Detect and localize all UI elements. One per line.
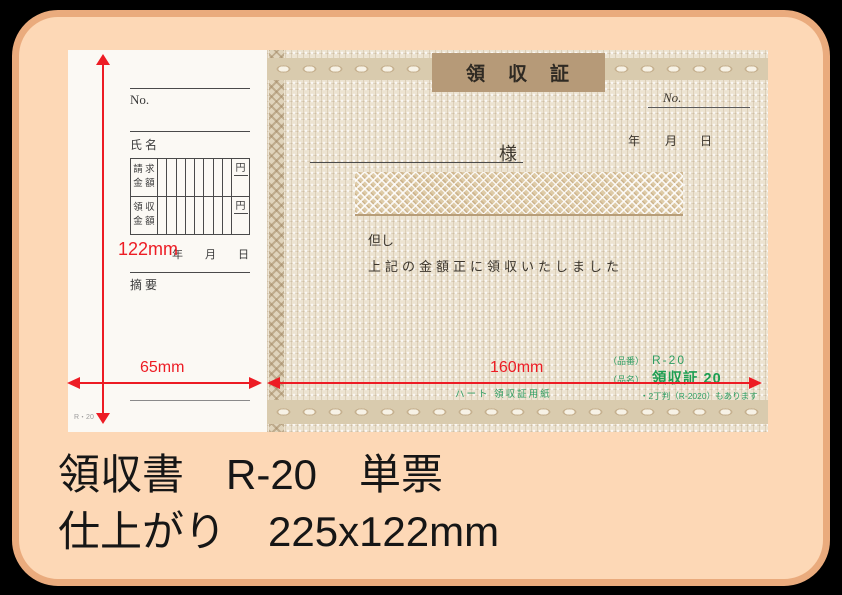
product-name-value: 領収証 20 — [652, 367, 722, 388]
receipt-product-image: No. 氏 名 請 求 金 額 円 領 収 — [68, 50, 768, 432]
stub-year-label: 年 — [172, 246, 183, 262]
received-amount-row: 領 収 金 額 円 — [131, 197, 249, 235]
caption-line-2: 仕上がり 225x122mm — [58, 503, 499, 560]
product-number-label: （品番） — [608, 354, 644, 367]
stub-no-underline — [130, 131, 250, 132]
guilloche-bottom-band — [267, 400, 768, 424]
product-name-row: （品名） 領収証 20 — [608, 367, 722, 388]
stub-date-rule — [130, 272, 250, 273]
caption-line-1: 領収書 R-20 単票 — [58, 446, 499, 503]
stub-remarks-label: 摘 要 — [130, 276, 157, 293]
stub-bottom-rule — [130, 400, 250, 401]
receipt-title: 領 収 証 — [432, 53, 605, 92]
variant-note: ・2丁判（R-2020）もあります — [640, 390, 758, 402]
guilloche-side-border — [269, 50, 284, 432]
billing-amount-row: 請 求 金 額 円 — [131, 159, 249, 197]
stub-name-label: 氏 名 — [130, 136, 157, 153]
billing-amount-label: 請 求 金 額 — [131, 159, 158, 196]
received-statement: 上記の金額正に領収いたしました — [368, 256, 623, 275]
receipt-no-underline — [648, 107, 750, 108]
stub-amount-table: 請 求 金 額 円 領 収 金 額 — [130, 158, 250, 235]
proviso-label: 但し — [368, 230, 394, 249]
receipt-day-label: 日 — [700, 132, 712, 149]
payer-name-underline — [310, 162, 523, 163]
receipt-no-label: No. — [663, 90, 681, 106]
stub-day-label: 日 — [238, 246, 249, 262]
received-yen-label: 円 — [232, 197, 249, 235]
stub-no-label: No. — [130, 92, 149, 108]
product-page: No. 氏 名 請 求 金 額 円 領 収 — [0, 0, 842, 595]
stub-form-code: R・20 — [74, 412, 94, 422]
billing-yen-label: 円 — [232, 159, 249, 196]
received-amount-label: 領 収 金 額 — [131, 197, 158, 235]
stub-month-label: 月 — [205, 246, 216, 262]
product-name-label: （品名） — [608, 373, 644, 386]
product-number-row: （品番） R-20 — [608, 353, 686, 367]
paper-type-note: ハート 領収証用紙 — [455, 386, 552, 400]
stub-top-rule — [130, 88, 250, 89]
receipt-year-label: 年 — [628, 132, 640, 149]
product-number-value: R-20 — [652, 353, 686, 367]
product-caption: 領収書 R-20 単票 仕上がり 225x122mm — [58, 446, 499, 560]
amount-hatch-box — [355, 172, 683, 216]
receipt-stub: No. 氏 名 請 求 金 額 円 領 収 — [68, 50, 267, 432]
receipt-body: 領 収 証 No. 年 月 日 様 但し 上記の金額正に領収いたしました （品番… — [267, 50, 768, 432]
receipt-month-label: 月 — [665, 132, 677, 149]
